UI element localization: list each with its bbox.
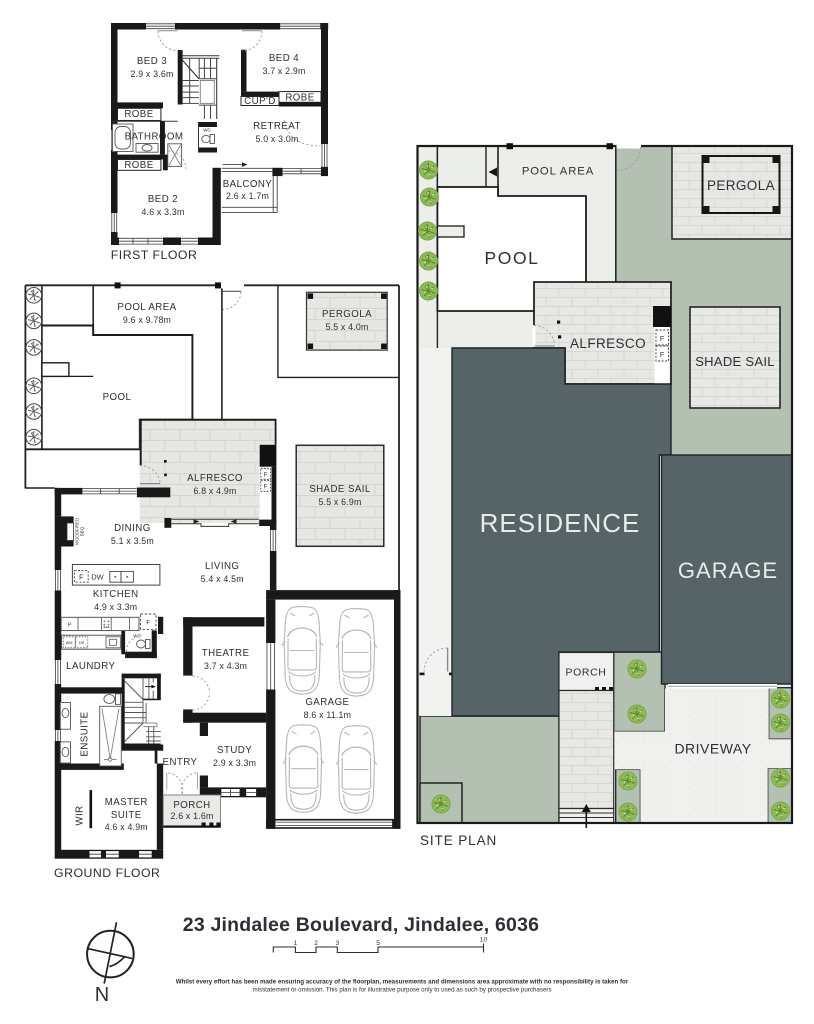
- svg-text:2.9 x 3.3m: 2.9 x 3.3m: [213, 758, 256, 768]
- svg-text:RETREAT: RETREAT: [253, 121, 301, 132]
- svg-text:BED 2: BED 2: [148, 194, 178, 205]
- svg-text:SHADE SAIL: SHADE SAIL: [695, 354, 775, 369]
- svg-text:Whilst every effort has been m: Whilst every effort has been made ensuri…: [176, 979, 629, 986]
- svg-text:RESIDENCE: RESIDENCE: [480, 508, 641, 538]
- svg-text:FIRST FLOOR: FIRST FLOOR: [111, 248, 198, 262]
- svg-text:BALCONY: BALCONY: [223, 179, 273, 190]
- svg-text:1: 1: [294, 940, 298, 947]
- svg-text:PORCH: PORCH: [173, 800, 210, 811]
- svg-text:N: N: [95, 984, 109, 1006]
- svg-text:5.5 x 4.0m: 5.5 x 4.0m: [325, 322, 368, 332]
- svg-text:WIR: WIR: [75, 805, 86, 825]
- svg-text:2.6 x 1.7m: 2.6 x 1.7m: [226, 191, 269, 201]
- svg-text:DR: DR: [79, 641, 85, 645]
- svg-text:DW: DW: [91, 573, 104, 582]
- svg-text:F: F: [264, 473, 268, 479]
- svg-text:POOL AREA: POOL AREA: [522, 166, 594, 178]
- svg-text:4.6 x 3.3m: 4.6 x 3.3m: [141, 207, 184, 217]
- svg-text:GARAGE: GARAGE: [305, 697, 349, 708]
- svg-text:GROUND FLOOR: GROUND FLOOR: [54, 866, 160, 880]
- svg-text:BED 3: BED 3: [137, 56, 167, 67]
- svg-text:5.0 x 3.0m: 5.0 x 3.0m: [255, 134, 298, 144]
- svg-text:SUITE: SUITE: [111, 810, 142, 821]
- svg-text:CUP'D: CUP'D: [244, 96, 276, 107]
- svg-text:LAUNDRY: LAUNDRY: [66, 661, 115, 672]
- svg-text:DRIVEWAY: DRIVEWAY: [674, 741, 751, 757]
- svg-text:ALFRESCO: ALFRESCO: [570, 336, 646, 351]
- svg-text:POOL: POOL: [484, 248, 539, 268]
- svg-text:BATHROOM: BATHROOM: [125, 132, 184, 143]
- svg-text:PERGOLA: PERGOLA: [707, 178, 775, 193]
- svg-text:5.4 x 4.5m: 5.4 x 4.5m: [201, 574, 244, 584]
- svg-text:3.7 x 2.9m: 3.7 x 2.9m: [262, 66, 305, 76]
- svg-text:SHADE SAIL: SHADE SAIL: [309, 484, 371, 495]
- svg-text:BED 4: BED 4: [269, 53, 299, 64]
- svg-text:10: 10: [480, 937, 488, 944]
- svg-text:BBQ: BBQ: [80, 526, 85, 536]
- svg-text:F: F: [146, 620, 150, 627]
- svg-text:MASTER: MASTER: [105, 797, 148, 808]
- svg-text:LIVING: LIVING: [205, 561, 239, 572]
- svg-text:misstatement or omission. This: misstatement or omission. This plan is f…: [252, 987, 551, 994]
- svg-text:GARAGE: GARAGE: [678, 558, 778, 583]
- svg-text:ENTRY: ENTRY: [163, 757, 198, 768]
- svg-text:9.6 x 9.78m: 9.6 x 9.78m: [123, 315, 171, 325]
- svg-text:F: F: [79, 575, 83, 582]
- svg-text:ROBE: ROBE: [285, 92, 314, 103]
- svg-text:8.6 x 11.1m: 8.6 x 11.1m: [304, 710, 352, 720]
- svg-text:POOL AREA: POOL AREA: [117, 302, 176, 313]
- svg-text:3: 3: [335, 940, 339, 947]
- svg-text:POOL: POOL: [103, 392, 132, 403]
- svg-text:DINING: DINING: [114, 523, 151, 534]
- svg-text:KITCHEN: KITCHEN: [93, 589, 139, 600]
- svg-text:F: F: [660, 352, 664, 359]
- svg-text:5.5 x 6.9m: 5.5 x 6.9m: [318, 497, 361, 507]
- svg-text:PERGOLA: PERGOLA: [322, 309, 372, 320]
- svg-text:4.9 x 3.3m: 4.9 x 3.3m: [94, 602, 137, 612]
- svg-text:SITE PLAN: SITE PLAN: [420, 833, 497, 848]
- svg-text:ROBE: ROBE: [124, 160, 153, 171]
- svg-text:2: 2: [314, 940, 318, 947]
- svg-text:2.6 x 1.6m: 2.6 x 1.6m: [170, 811, 213, 821]
- svg-text:WC: WC: [203, 128, 211, 133]
- svg-text:F: F: [660, 336, 664, 343]
- svg-text:23 Jindalee Boulevard, Jindale: 23 Jindalee Boulevard, Jindalee, 6036: [183, 914, 539, 936]
- svg-text:PORCH: PORCH: [566, 667, 607, 679]
- svg-text:F: F: [264, 485, 268, 491]
- svg-text:ENSUITE: ENSUITE: [80, 711, 91, 756]
- svg-text:5: 5: [376, 940, 380, 947]
- svg-text:3.7 x 4.3m: 3.7 x 4.3m: [204, 661, 247, 671]
- svg-text:6.8 x 4.9m: 6.8 x 4.9m: [193, 486, 236, 496]
- svg-text:4.6 x 4.9m: 4.6 x 4.9m: [105, 822, 148, 832]
- svg-text:ROBE: ROBE: [124, 109, 153, 120]
- svg-text:THEATRE: THEATRE: [202, 648, 250, 659]
- svg-text:WM: WM: [66, 641, 73, 645]
- svg-text:STUDY: STUDY: [217, 745, 252, 756]
- svg-text:5.1 x 3.5m: 5.1 x 3.5m: [111, 536, 154, 546]
- svg-text:ALFRESCO: ALFRESCO: [187, 473, 243, 484]
- svg-text:2.9 x 3.6m: 2.9 x 3.6m: [130, 69, 173, 79]
